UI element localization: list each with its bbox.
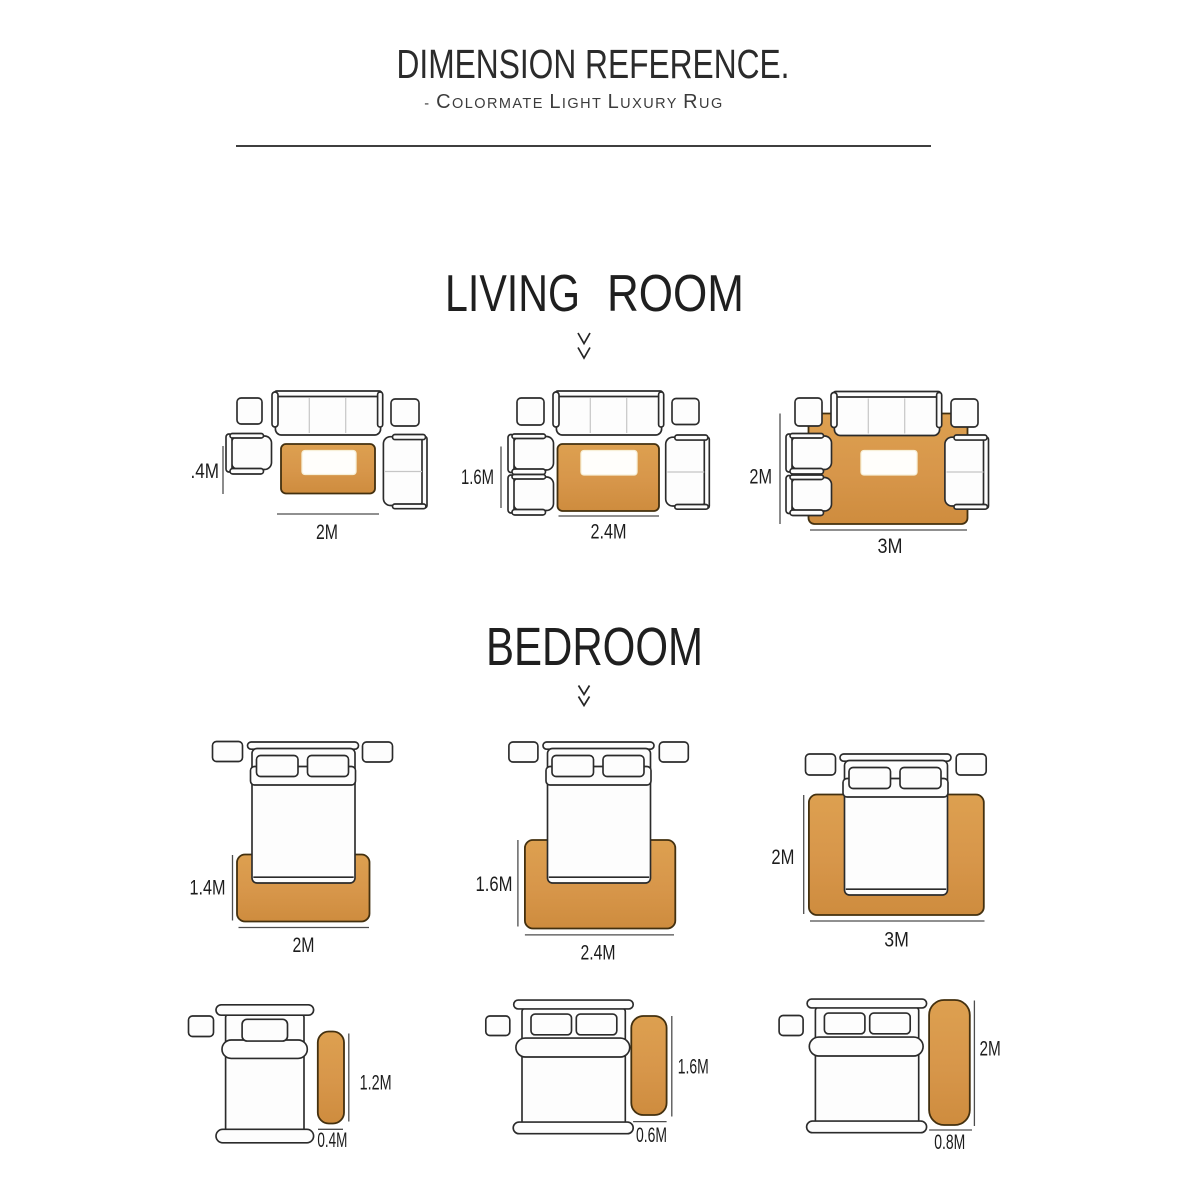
svg-text:1.6M: 1.6M — [678, 1055, 709, 1079]
svg-text:2.4M: 2.4M — [591, 520, 627, 544]
svg-text:2.4M: 2.4M — [581, 941, 616, 965]
svg-text:0.8M: 0.8M — [934, 1130, 965, 1154]
svg-text:0.4M: 0.4M — [317, 1128, 347, 1152]
svg-text:2M: 2M — [316, 520, 338, 544]
svg-text:1.6M: 1.6M — [461, 465, 494, 489]
svg-text:2M: 2M — [293, 933, 315, 957]
svg-text:1.4M: 1.4M — [190, 876, 226, 900]
svg-text:BEDROOM: BEDROOM — [486, 618, 703, 677]
svg-text:.4M: .4M — [191, 459, 220, 483]
svg-text:2M: 2M — [771, 845, 794, 869]
svg-text:LIVING: LIVING — [445, 264, 580, 322]
svg-text:ROOM: ROOM — [607, 264, 744, 322]
svg-text:1.2M: 1.2M — [360, 1071, 392, 1095]
svg-text:3M: 3M — [878, 534, 903, 558]
svg-text:3M: 3M — [884, 928, 909, 952]
svg-text:2M: 2M — [980, 1037, 1001, 1061]
svg-text:0.6M: 0.6M — [636, 1123, 667, 1147]
svg-text:1.6M: 1.6M — [476, 872, 513, 896]
svg-text:DIMENSION REFERENCE.: DIMENSION REFERENCE. — [397, 41, 790, 87]
svg-text:2M: 2M — [749, 465, 772, 489]
